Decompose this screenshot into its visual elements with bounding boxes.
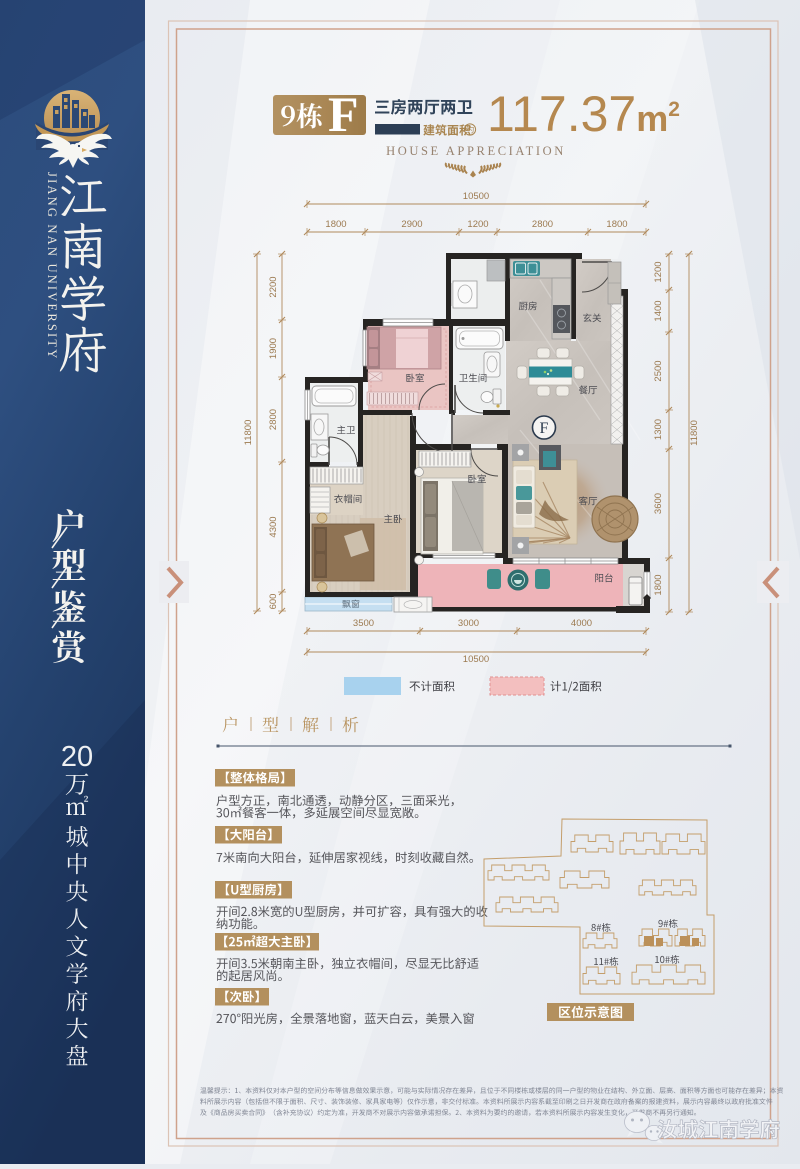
svg-text:1300: 1300 [653, 419, 664, 440]
svg-text:20: 20 [61, 741, 93, 773]
svg-text:JIANG NAN UNIVERSITY: JIANG NAN UNIVERSITY [45, 172, 59, 360]
svg-text:1200: 1200 [467, 219, 488, 230]
svg-text:2800: 2800 [532, 219, 553, 230]
svg-text:F: F [328, 86, 359, 142]
svg-text:3500: 3500 [353, 618, 374, 629]
svg-text:3600: 3600 [653, 493, 664, 514]
svg-text:1800: 1800 [653, 574, 664, 595]
svg-text:2500: 2500 [653, 360, 664, 381]
svg-text:1400: 1400 [653, 300, 664, 321]
svg-text:2900: 2900 [401, 219, 422, 230]
svg-text:F: F [540, 420, 549, 437]
svg-text:10500: 10500 [463, 191, 489, 202]
svg-text:4300: 4300 [268, 516, 279, 537]
svg-text:2200: 2200 [268, 276, 279, 297]
svg-text:2800: 2800 [268, 409, 279, 430]
svg-text:4000: 4000 [571, 618, 592, 629]
svg-text:HOUSE APPRECIATION: HOUSE APPRECIATION [386, 144, 566, 158]
svg-text:1900: 1900 [268, 338, 279, 359]
svg-text:1200: 1200 [653, 261, 664, 282]
svg-text:10500: 10500 [463, 654, 489, 665]
svg-text:11800: 11800 [243, 420, 254, 446]
svg-text:1800: 1800 [606, 219, 627, 230]
svg-text:1800: 1800 [325, 219, 346, 230]
svg-text:3000: 3000 [458, 618, 479, 629]
svg-text:11800: 11800 [689, 420, 700, 446]
svg-text:600: 600 [268, 594, 279, 610]
